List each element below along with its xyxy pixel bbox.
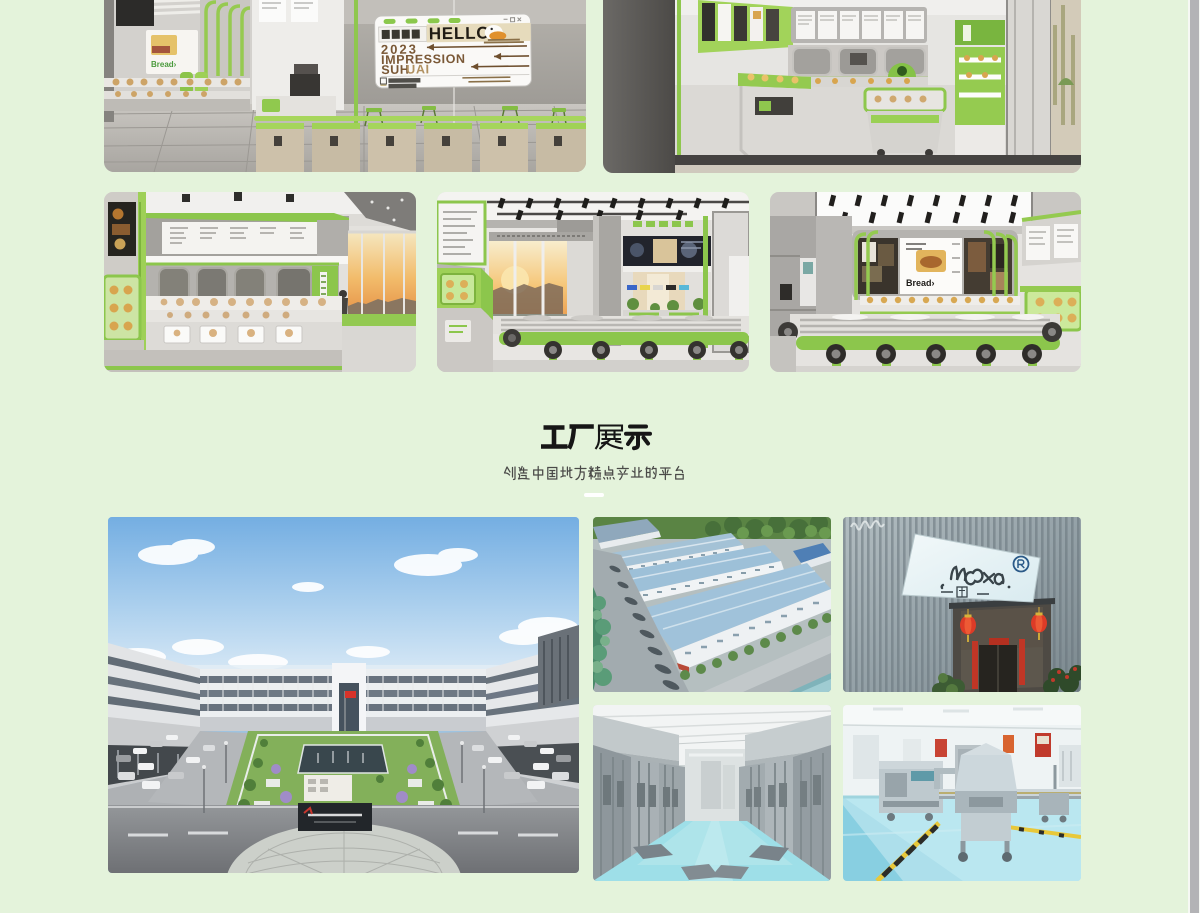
svg-text:Bread›: Bread› <box>151 60 177 69</box>
svg-text:Bread›: Bread› <box>906 278 935 288</box>
svg-text:UAI: UAI <box>406 62 430 76</box>
svg-text:HELLO: HELLO <box>429 23 491 43</box>
